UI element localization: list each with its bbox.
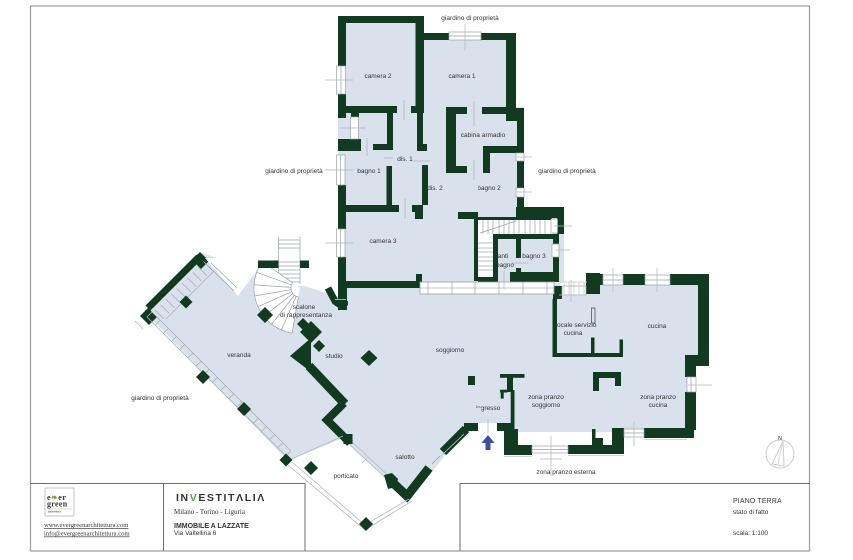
svg-text:cucina: cucina bbox=[648, 323, 667, 330]
svg-text:cucina: cucina bbox=[564, 330, 583, 337]
svg-text:soggiorno: soggiorno bbox=[436, 347, 465, 354]
svg-text:PIANO TERRA: PIANO TERRA bbox=[733, 498, 782, 505]
svg-text:scala: 1:100: scala: 1:100 bbox=[733, 530, 768, 537]
svg-text:camera 2: camera 2 bbox=[364, 73, 391, 80]
svg-text:INVESTITΛLIΛ: INVESTITΛLIΛ bbox=[176, 492, 266, 504]
svg-text:green: green bbox=[47, 500, 68, 509]
svg-text:N: N bbox=[778, 436, 782, 442]
svg-text:dis. 1: dis. 1 bbox=[397, 156, 413, 163]
svg-text:cucina: cucina bbox=[649, 402, 668, 409]
svg-text:porticato: porticato bbox=[334, 473, 359, 480]
svg-text:bagno 2: bagno 2 bbox=[477, 185, 501, 192]
svg-text:Milano - Torino - Liguria: Milano - Torino - Liguria bbox=[174, 508, 246, 516]
svg-text:cabina armadio: cabina armadio bbox=[461, 132, 506, 139]
svg-text:IMMOBILE A LAZZATE: IMMOBILE A LAZZATE bbox=[174, 523, 249, 530]
svg-text:scalone: scalone bbox=[293, 304, 316, 311]
svg-text:di rappresentanza: di rappresentanza bbox=[280, 312, 332, 319]
svg-text:veranda: veranda bbox=[227, 352, 251, 359]
svg-text:bagno: bagno bbox=[496, 262, 514, 269]
svg-text:zona pranzo: zona pranzo bbox=[640, 394, 676, 401]
svg-text:giardino di proprietà: giardino di proprietà bbox=[265, 168, 323, 175]
svg-text:architettura: architettura bbox=[48, 510, 62, 514]
svg-text:bagno 3: bagno 3 bbox=[522, 253, 546, 260]
svg-text:zona pranzo esterna: zona pranzo esterna bbox=[536, 469, 596, 476]
svg-text:camera 1: camera 1 bbox=[448, 73, 475, 80]
svg-text:giardino di proprietà: giardino di proprietà bbox=[131, 395, 189, 402]
svg-text:anti: anti bbox=[498, 253, 508, 260]
svg-text:camera 3: camera 3 bbox=[369, 238, 396, 245]
svg-text:salotto: salotto bbox=[395, 454, 415, 461]
svg-text:soggiorno: soggiorno bbox=[532, 402, 561, 409]
svg-text:studio: studio bbox=[325, 353, 343, 360]
svg-text:locale servizio: locale servizio bbox=[556, 322, 597, 329]
svg-text:www.evergreenarchitettura.com: www.evergreenarchitettura.com bbox=[44, 522, 129, 529]
svg-text:Via Valtellina 6: Via Valtellina 6 bbox=[174, 530, 217, 537]
svg-text:stato di fatto: stato di fatto bbox=[733, 509, 769, 516]
svg-text:giardino di proprietà: giardino di proprietà bbox=[441, 15, 499, 22]
svg-text:zona pranzo: zona pranzo bbox=[528, 394, 564, 401]
svg-text:bagno 1: bagno 1 bbox=[357, 168, 381, 175]
svg-text:info@evergreenarchitettura.com: info@evergreenarchitettura.com bbox=[44, 531, 130, 538]
svg-text:giardino di proprietà: giardino di proprietà bbox=[538, 168, 596, 175]
svg-text:dis. 2: dis. 2 bbox=[427, 185, 443, 192]
